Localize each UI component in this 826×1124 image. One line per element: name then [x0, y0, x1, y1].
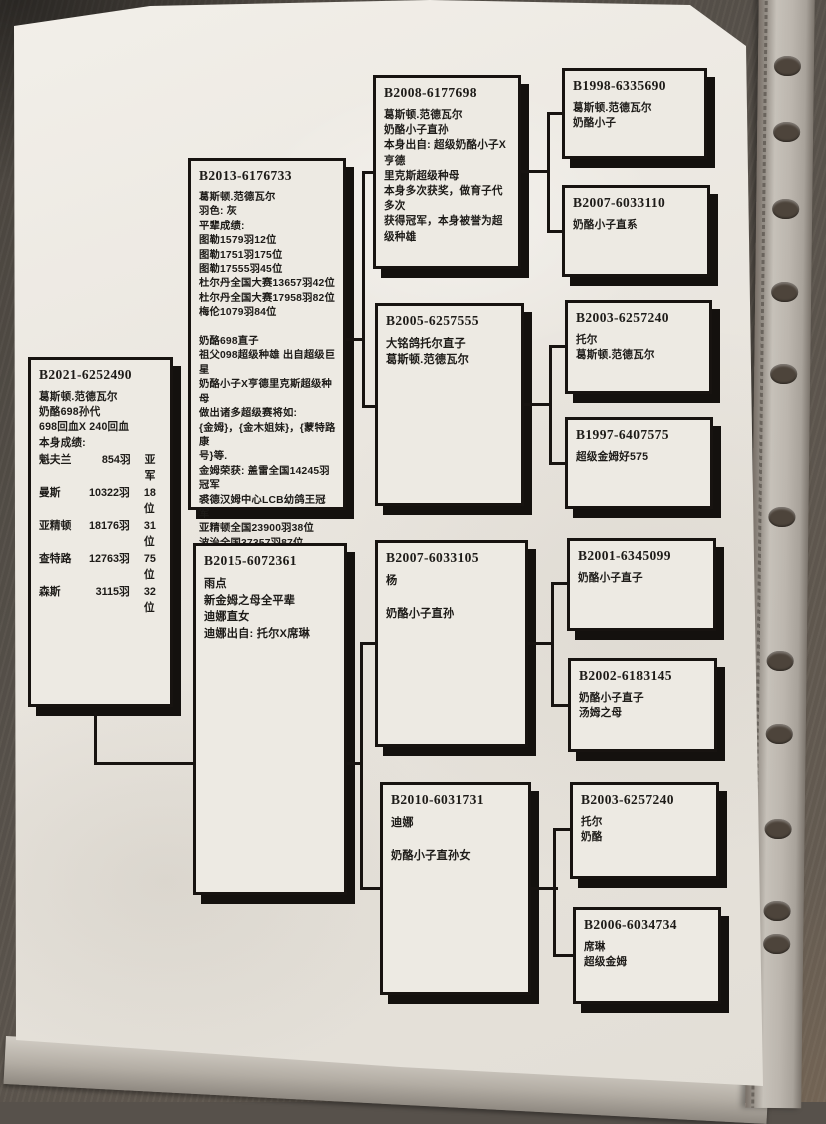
binder-hole: [767, 651, 794, 671]
pedigree-box-b2021: B2021-6252490 葛斯顿.范德瓦尔 奶酪698孙代 698回血X 24…: [28, 357, 173, 707]
race-name: 魁夫兰: [39, 452, 83, 485]
ring-number: B2003-6257240: [581, 792, 709, 808]
race-result-row: 查特路 12763羽 75位: [39, 551, 163, 584]
connector-line: [360, 642, 363, 890]
connector-line: [553, 954, 575, 957]
box-text: 葛斯顿.范德瓦尔 奶酪698孙代 698回血X 240回血 本身成绩:: [39, 390, 163, 451]
pedigree-box-b2007-6033105: B2007-6033105 杨 奶酪小子直孙: [375, 540, 528, 747]
pedigree-box-b2007-6033110: B2007-6033110 奶酪小子直系: [562, 185, 710, 277]
race-rank: 31位: [144, 518, 163, 551]
connector-line: [94, 762, 194, 765]
pedigree-box-b1997: B1997-6407575 超级金姆好575: [565, 417, 713, 509]
ring-number: B2015-6072361: [204, 553, 337, 569]
ring-number: B2007-6033110: [573, 195, 700, 211]
connector-line: [549, 345, 567, 348]
connector-line: [547, 230, 564, 233]
connector-line: [522, 403, 552, 406]
pedigree-box-b2013: B2013-6176733 葛斯顿.范德瓦尔 羽色: 灰 平辈成绩: 图勒157…: [188, 158, 346, 510]
box-text: 葛斯顿.范德瓦尔 羽色: 灰 平辈成绩: 图勒1579羽12位 图勒1751羽1…: [199, 191, 336, 566]
box-text: 托尔 奶酪: [581, 815, 709, 845]
race-result-row: 亚精顿 18176羽 31位: [39, 518, 163, 551]
connector-line: [362, 171, 365, 408]
connector-line: [360, 887, 382, 890]
race-rank: 亚军: [145, 452, 163, 485]
race-birds: 10322羽: [83, 485, 130, 518]
connector-line: [553, 828, 556, 957]
connector-line: [360, 642, 377, 645]
race-birds: 854羽: [83, 452, 131, 485]
pedigree-box-b2006: B2006-6034734 席琳 超级金姆: [573, 907, 721, 1004]
pedigree-sheet: B2021-6252490 葛斯顿.范德瓦尔 奶酪698孙代 698回血X 24…: [0, 0, 826, 1102]
pedigree-box-b2010: B2010-6031731 迪娜 奶酪小子直孙女: [380, 782, 531, 995]
race-rank: 75位: [144, 551, 163, 584]
box-text: 托尔 葛斯顿.范德瓦尔: [576, 333, 702, 363]
connector-line: [94, 712, 97, 765]
race-name: 亚精顿: [39, 518, 83, 551]
race-rank: 18位: [144, 485, 163, 518]
race-result-row: 魁夫兰 854羽 亚军: [39, 452, 163, 485]
box-text: 雨点 新金姆之母全平辈 迪娜直女 迪娜出自: 托尔X席琳: [204, 576, 337, 642]
race-name: 森斯: [39, 584, 83, 617]
box-text: 奶酪小子直系: [573, 218, 700, 233]
ring-number: B2013-6176733: [199, 168, 336, 184]
connector-line: [519, 170, 550, 173]
binder-hole: [763, 934, 790, 954]
race-results: 魁夫兰 854羽 亚军 曼斯 10322羽 18位 亚精顿 18176羽 31位…: [39, 452, 163, 617]
ring-number: B2003-6257240: [576, 310, 702, 326]
connector-line: [551, 582, 569, 585]
pedigree-box-b2002: B2002-6183145 奶酪小子直子 汤姆之母: [568, 658, 717, 752]
binder-hole: [771, 282, 798, 302]
pedigree-box-b2005: B2005-6257555 大铭鸽托尔直子 葛斯顿.范德瓦尔: [375, 303, 524, 506]
pedigree-box-b1998: B1998-6335690 葛斯顿.范德瓦尔 奶酪小子: [562, 68, 707, 159]
box-text: 席琳 超级金姆: [584, 940, 711, 970]
binder-hole: [768, 507, 795, 527]
binder-hole: [764, 819, 791, 839]
race-birds: 3115羽: [83, 584, 130, 617]
box-text: 葛斯顿.范德瓦尔 奶酪小子直孙 本身出自: 超级奶酪小子X亨德 里克斯超级种母 …: [384, 108, 511, 245]
race-birds: 12763羽: [83, 551, 130, 584]
pedigree-box-b2015: B2015-6072361 雨点 新金姆之母全平辈 迪娜直女 迪娜出自: 托尔X…: [193, 543, 347, 895]
race-birds: 18176羽: [83, 518, 130, 551]
ring-number: B2005-6257555: [386, 313, 514, 329]
connector-line: [549, 462, 567, 465]
box-text: 迪娜 奶酪小子直孙女: [391, 815, 521, 865]
ring-number: B2008-6177698: [384, 85, 511, 101]
pedigree-box-b2008: B2008-6177698 葛斯顿.范德瓦尔 奶酪小子直孙 本身出自: 超级奶酪…: [373, 75, 521, 269]
binder-hole: [774, 56, 801, 76]
race-result-row: 曼斯 10322羽 18位: [39, 485, 163, 518]
race-name: 曼斯: [39, 485, 83, 518]
binder-hole: [772, 199, 799, 219]
binder-hole: [763, 901, 790, 921]
binder-hole: [766, 724, 793, 744]
box-text: 葛斯顿.范德瓦尔 奶酪小子: [573, 101, 697, 131]
connector-line: [553, 828, 572, 831]
connector-line: [551, 582, 554, 707]
binder-hole: [770, 364, 797, 384]
pedigree-box-b2003-bottom: B2003-6257240 托尔 奶酪: [570, 782, 719, 879]
ring-number: B1998-6335690: [573, 78, 697, 94]
ring-number: B2001-6345099: [578, 548, 706, 564]
connector-line: [362, 171, 375, 174]
binder-hole: [773, 122, 800, 142]
pedigree-box-b2001: B2001-6345099 奶酪小子直子: [567, 538, 716, 631]
race-name: 查特路: [39, 551, 83, 584]
pedigree-box-b2003-top: B2003-6257240 托尔 葛斯顿.范德瓦尔: [565, 300, 712, 394]
ring-number: B2021-6252490: [39, 367, 163, 383]
connector-line: [547, 112, 550, 233]
ring-number: B2007-6033105: [386, 550, 518, 566]
box-text: 大铭鸽托尔直子 葛斯顿.范德瓦尔: [386, 336, 514, 368]
connector-line: [547, 112, 564, 115]
connector-line: [551, 704, 570, 707]
ring-number: B2010-6031731: [391, 792, 521, 808]
connector-line: [526, 642, 554, 645]
race-rank: 32位: [144, 584, 163, 617]
connector-line: [362, 405, 377, 408]
connector-line: [549, 345, 552, 465]
race-result-row: 森斯 3115羽 32位: [39, 584, 163, 617]
ring-number: B2006-6034734: [584, 917, 711, 933]
ring-number: B2002-6183145: [579, 668, 707, 684]
box-text: 杨 奶酪小子直孙: [386, 573, 518, 623]
box-text: 奶酪小子直子: [578, 571, 706, 586]
box-text: 奶酪小子直子 汤姆之母: [579, 691, 707, 721]
ring-number: B1997-6407575: [576, 427, 703, 443]
box-text: 超级金姆好575: [576, 450, 703, 465]
